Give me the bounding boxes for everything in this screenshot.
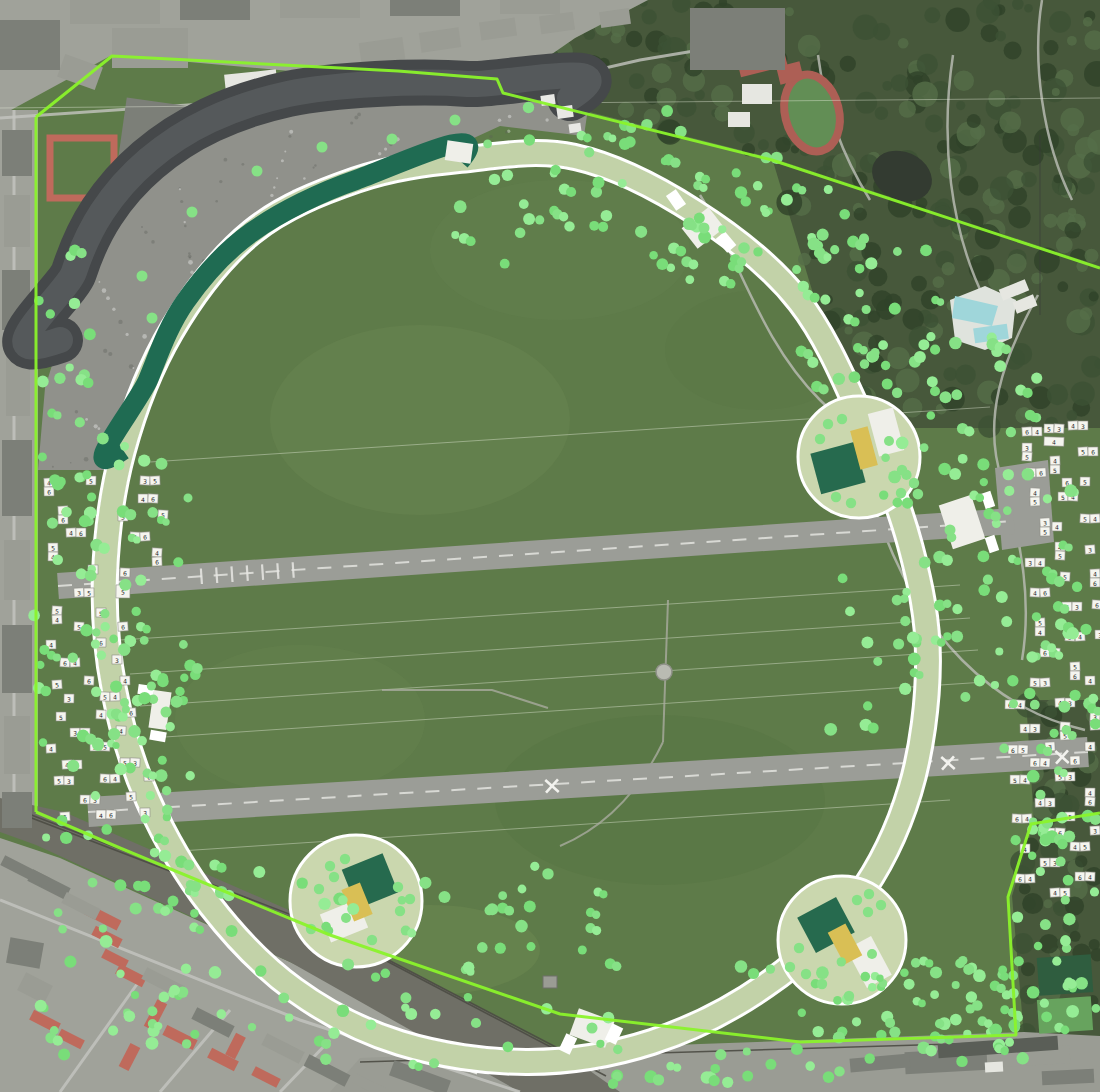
tree-dot: [852, 895, 862, 905]
tree-dot: [861, 636, 873, 648]
tree-dot: [337, 1004, 350, 1017]
tree-dot: [885, 1018, 895, 1028]
tree-dot: [321, 1039, 331, 1049]
tree-dot: [527, 942, 536, 951]
park-tree-blob: [1012, 933, 1033, 954]
tree-dot: [951, 631, 963, 643]
tree-dot: [781, 194, 793, 206]
park-tree-blob: [875, 107, 888, 120]
plot-storey-number: 5: [1047, 425, 1051, 432]
tree-dot: [183, 859, 194, 870]
plot-storey-number: 4: [1028, 875, 1032, 882]
tree-dot: [1005, 1038, 1014, 1047]
tree-dot: [991, 681, 999, 689]
park-tree-blob: [990, 177, 1014, 201]
tree-dot: [523, 102, 534, 113]
tree-dot: [101, 622, 110, 631]
tree-dot: [765, 1059, 776, 1070]
tree-dot: [1052, 957, 1061, 966]
plot-storey-number: 4: [123, 677, 127, 684]
tree-dot: [892, 388, 902, 398]
park-tree-blob: [1057, 281, 1068, 292]
tree-dot: [405, 894, 415, 904]
small-building: [543, 976, 557, 988]
tree-dot: [61, 507, 71, 517]
tree-dot: [138, 692, 150, 704]
apron-texture-dot: [142, 334, 147, 339]
plot-storey-number: 5: [129, 793, 133, 800]
tree-dot: [559, 212, 568, 221]
tree-dot: [973, 969, 986, 982]
plot-storey-number: 4: [113, 775, 117, 782]
tree-dot: [564, 221, 574, 231]
plot-storey-number: 3: [67, 778, 71, 785]
stadium-building: [728, 112, 750, 127]
apron-texture-dot: [284, 151, 286, 153]
apron-texture-dot: [144, 231, 147, 234]
park-tree-blob: [1044, 899, 1053, 908]
plot-storey-number: 3: [1081, 423, 1085, 430]
tree-dot: [592, 911, 600, 919]
tree-dot: [859, 234, 869, 244]
apron-texture-dot: [545, 118, 548, 121]
plot-storey-number: 4: [1088, 677, 1092, 684]
tree-dot: [502, 170, 513, 181]
tree-dot: [112, 742, 119, 749]
tree-dot: [966, 991, 977, 1002]
tree-dot: [897, 465, 907, 475]
tree-dot: [807, 357, 818, 368]
park-tree-blob: [1078, 177, 1095, 194]
tree-dot: [342, 958, 354, 970]
apron-texture-dot: [106, 296, 110, 300]
tree-dot: [53, 653, 61, 661]
park-tree-blob: [942, 262, 955, 275]
tree-dot: [41, 686, 52, 697]
plot-storey-number: 6: [63, 659, 67, 666]
tree-dot: [37, 376, 49, 388]
apron-texture-dot: [75, 410, 78, 413]
plot-storey-number: 5: [1083, 478, 1087, 485]
tree-dot: [1060, 936, 1071, 947]
tree-dot: [542, 868, 553, 879]
tree-dot: [735, 264, 744, 273]
tree-dot: [108, 728, 120, 740]
tree-dot: [156, 458, 168, 470]
park-tree-blob: [775, 137, 790, 152]
park-tree-blob: [1060, 108, 1084, 132]
tree-dot: [1024, 688, 1035, 699]
tree-dot: [824, 253, 832, 261]
tree-dot: [82, 470, 91, 479]
plot-storey-number: 4: [69, 529, 73, 536]
tree-dot: [649, 251, 658, 260]
tree-dot: [1088, 694, 1098, 704]
tree-dot: [140, 636, 149, 645]
tree-dot: [451, 231, 459, 239]
tree-dot: [722, 1077, 733, 1088]
apron-texture-dot: [99, 281, 101, 283]
tree-dot: [255, 965, 266, 976]
park-tree-blob: [995, 31, 1006, 42]
apron-texture-dot: [94, 424, 98, 428]
tree-dot: [182, 1039, 191, 1048]
plot-storey-number: 4: [1023, 725, 1027, 732]
tree-dot: [124, 1010, 136, 1022]
tree-dot: [181, 963, 191, 973]
plot-storey-number: 4: [1073, 843, 1077, 850]
plot-storey-number: 4: [1038, 559, 1042, 566]
tree-dot: [865, 1053, 875, 1063]
tree-dot: [1090, 887, 1099, 896]
tree-dot: [833, 373, 845, 385]
tree-dot: [142, 625, 151, 634]
tree-dot: [366, 1019, 377, 1030]
tree-dot: [838, 574, 848, 584]
park-tree-blob: [798, 35, 820, 57]
tree-dot: [1043, 494, 1052, 503]
tree-dot: [1057, 839, 1067, 849]
plot-storey-number: 5: [55, 607, 59, 614]
park-tree-blob: [925, 114, 943, 132]
park-tree-blob: [891, 74, 909, 92]
plot-storey-number: 5: [1013, 777, 1017, 784]
plot-storey-number: 3: [1093, 827, 1097, 834]
tree-dot: [612, 962, 622, 972]
park-tree-blob: [898, 38, 909, 49]
tree-dot: [949, 337, 962, 350]
tree-dot: [120, 698, 129, 707]
tree-dot: [119, 579, 131, 591]
tree-dot: [91, 791, 100, 800]
plot-storey-number: 4: [99, 711, 103, 718]
tree-dot: [169, 985, 180, 996]
tree-dot: [318, 898, 330, 910]
tree-dot: [54, 373, 65, 384]
tree-dot: [839, 209, 850, 220]
tree-dot: [52, 555, 63, 566]
tree-dot: [217, 1009, 227, 1019]
tree-dot: [893, 498, 903, 508]
building-block: [4, 716, 30, 774]
tree-dot: [429, 1058, 439, 1068]
tree-dot: [911, 958, 921, 968]
tree-dot: [524, 134, 535, 145]
tree-dot: [653, 1074, 664, 1085]
plot-storey-number: 5: [89, 477, 93, 484]
park-tree-blob: [912, 81, 938, 107]
tree-dot: [860, 359, 870, 369]
park-tree-blob: [1007, 254, 1027, 274]
tree-dot: [1014, 956, 1024, 966]
plot-storey-number: 5: [1043, 528, 1047, 535]
tree-dot: [464, 993, 472, 1001]
tree-dot: [1001, 616, 1012, 627]
tree-dot: [523, 213, 535, 225]
apron-texture-dot: [184, 221, 186, 223]
tree-dot: [791, 1043, 803, 1055]
tree-dot: [909, 478, 919, 488]
tree-dot: [139, 881, 151, 893]
tree-dot: [99, 543, 110, 554]
tree-dot: [173, 557, 183, 567]
apron-texture-dot: [190, 271, 193, 274]
ring-entrance-plaza: [445, 140, 474, 163]
tree-dot: [670, 157, 680, 167]
tree-dot: [400, 992, 411, 1003]
tree-dot: [735, 186, 747, 198]
plot-storey-number: 6: [151, 495, 155, 502]
apron-texture-dot: [70, 462, 72, 464]
tree-dot: [881, 361, 890, 370]
tree-dot: [498, 891, 507, 900]
tree-dot: [49, 474, 60, 485]
tree-dot: [609, 135, 617, 143]
park-tree-blob: [1004, 42, 1022, 60]
tree-dot: [439, 891, 451, 903]
tree-dot: [978, 584, 990, 596]
tree-dot: [1027, 770, 1040, 783]
tree-dot: [495, 943, 506, 954]
tree-dot: [846, 498, 856, 508]
tree-dot: [54, 908, 63, 917]
plot-storey-number: 6: [1033, 759, 1037, 766]
park-tree-blob: [967, 114, 981, 128]
apron-texture-dot: [215, 200, 218, 203]
tree-dot: [584, 147, 594, 157]
tree-dot: [91, 640, 100, 649]
plot-storey-number: 6: [1025, 428, 1029, 435]
park-tree-blob: [1065, 222, 1082, 239]
tree-dot: [823, 1071, 835, 1083]
tree-dot: [550, 165, 560, 175]
tree-dot: [893, 247, 902, 256]
apron-texture-dot: [151, 240, 155, 244]
tree-dot: [587, 1023, 598, 1034]
tree-dot: [1009, 699, 1018, 708]
plot-storey-number: 6: [143, 533, 147, 540]
tree-dot: [661, 105, 673, 117]
tree-dot: [42, 834, 50, 842]
apron-texture-dot: [288, 135, 291, 138]
tree-dot: [524, 901, 536, 913]
tree-dot: [699, 184, 707, 192]
building-block: [70, 0, 160, 24]
tree-dot: [1050, 729, 1059, 738]
park-tree-blob: [832, 153, 856, 177]
apron-texture-dot: [357, 113, 361, 117]
tree-dot: [1043, 747, 1052, 756]
plot-storey-number: 6: [1043, 589, 1047, 596]
park-tree-blob: [662, 37, 687, 62]
tree-dot: [815, 434, 825, 444]
park-tree-blob: [845, 326, 853, 334]
park-tree-blob: [854, 208, 867, 221]
tree-dot: [92, 628, 100, 636]
apron-texture-dot: [505, 130, 508, 133]
plot-storey-number: 6: [1011, 747, 1015, 754]
tree-dot: [471, 1018, 481, 1028]
tree-dot: [190, 909, 199, 918]
park-tree-blob: [954, 71, 974, 91]
plot-storey-number: 5: [1083, 843, 1087, 850]
tree-dot: [125, 509, 136, 520]
building-block: [390, 0, 460, 16]
plot-storey-number: 4: [1038, 799, 1042, 806]
tree-dot: [958, 454, 968, 464]
tree-dot: [996, 984, 1005, 993]
tree-dot: [676, 246, 687, 257]
park-tree-blob: [999, 111, 1021, 133]
tree-dot: [879, 490, 888, 499]
plot-storey-number: 3: [1075, 603, 1079, 610]
tree-dot: [138, 454, 150, 466]
plot-storey-number: 6: [103, 775, 107, 782]
tree-dot: [162, 786, 171, 795]
park-tree-blob: [785, 7, 794, 16]
tree-dot: [1022, 468, 1035, 481]
tree-dot: [1061, 895, 1070, 904]
tree-dot: [135, 575, 146, 586]
tree-dot: [515, 228, 526, 239]
plot-storey-number: 5: [1033, 498, 1037, 505]
tree-dot: [904, 979, 915, 990]
park-tree-blob: [868, 267, 887, 286]
tree-dot: [930, 345, 940, 355]
apron-texture-dot: [281, 159, 284, 162]
tree-dot: [831, 492, 841, 502]
tree-dot: [855, 289, 863, 297]
tree-dot: [1036, 867, 1045, 876]
tree-dot: [75, 417, 85, 427]
tree-dot: [817, 229, 829, 241]
plot-storey-number: 6: [87, 677, 91, 684]
tree-dot: [976, 493, 985, 502]
tree-dot: [209, 966, 222, 979]
tree-dot: [913, 489, 924, 500]
plot-storey-number: 4: [1053, 889, 1057, 896]
tree-dot: [132, 607, 141, 616]
plot-storey-number: 3: [115, 657, 119, 664]
plot-storey-number: 4: [113, 693, 117, 700]
tree-dot: [60, 832, 72, 844]
plot-storey-number: 5: [153, 477, 157, 484]
apron-texture-dot: [384, 148, 387, 151]
tree-dot: [154, 1022, 162, 1030]
park-tree-blob: [1085, 249, 1099, 263]
tree-dot: [694, 213, 705, 224]
tree-dot: [735, 960, 748, 973]
tree-dot: [39, 738, 47, 746]
tree-dot: [160, 906, 170, 916]
tree-dot: [699, 223, 710, 234]
tree-dot: [688, 221, 697, 230]
runway-threshold-bar: [231, 566, 232, 582]
plot-storey-number: 3: [1025, 444, 1029, 451]
tree-dot: [618, 179, 627, 188]
tree-dot: [951, 389, 962, 400]
tree-dot: [920, 443, 929, 452]
tree-dot: [1000, 972, 1009, 981]
plot-storey-number: 4: [1052, 438, 1056, 445]
tree-dot: [1066, 1005, 1079, 1018]
tree-dot: [150, 848, 160, 858]
plot-storey-number: 3: [1043, 519, 1047, 526]
building-block: [0, 20, 60, 70]
grass-patch: [270, 325, 570, 515]
tree-dot: [805, 1061, 815, 1071]
tree-dot: [454, 200, 467, 213]
tree-dot: [97, 432, 109, 444]
tree-dot: [1075, 977, 1088, 990]
tree-dot: [876, 900, 886, 910]
park-tree-blob: [981, 24, 999, 42]
tree-dot: [878, 340, 888, 350]
tree-dot: [128, 725, 141, 738]
apron-texture-dot: [303, 177, 306, 180]
tree-dot: [819, 384, 829, 394]
apron-texture-dot: [180, 200, 183, 203]
tree-dot: [407, 929, 416, 938]
plot-storey-number: 4: [1025, 815, 1029, 822]
tree-dot: [28, 610, 40, 622]
tree-dot: [963, 964, 974, 975]
tree-dot: [68, 652, 78, 662]
apron-texture-dot: [98, 427, 101, 430]
park-tree-blob: [1034, 128, 1059, 153]
tree-dot: [908, 653, 921, 666]
tree-dot: [889, 303, 901, 315]
tree-dot: [996, 591, 1008, 603]
plot-storey-number: 5: [1043, 859, 1047, 866]
tree-dot: [328, 1027, 340, 1039]
tree-dot: [91, 687, 101, 697]
tree-dot: [530, 862, 539, 871]
park-tree-blob: [1031, 273, 1043, 285]
tree-dot: [347, 903, 359, 915]
tree-dot: [47, 518, 58, 529]
plot-storey-number: 6: [155, 558, 159, 565]
tree-dot: [196, 925, 205, 934]
tree-dot: [715, 1049, 726, 1060]
tree-dot: [876, 975, 883, 982]
tree-dot: [515, 920, 528, 933]
park-tree-blob: [1024, 4, 1033, 13]
tree-dot: [837, 414, 847, 424]
tree-dot: [97, 651, 106, 660]
tree-dot: [1092, 1004, 1100, 1013]
plot-storey-number: 6: [1091, 448, 1095, 455]
plot-storey-number: 6: [1039, 469, 1043, 476]
apron-texture-dot: [102, 288, 107, 293]
tree-dot: [926, 1045, 937, 1056]
tree-dot: [147, 681, 156, 690]
tree-dot: [297, 877, 308, 888]
apron-texture-dot: [350, 121, 353, 124]
tree-dot: [1017, 1052, 1029, 1064]
tree-dot: [918, 339, 929, 350]
plot-storey-number: 5: [103, 693, 107, 700]
tree-dot: [414, 1063, 422, 1071]
tree-dot: [100, 935, 113, 948]
tree-dot: [884, 436, 894, 446]
tree-dot: [137, 271, 148, 282]
tree-dot: [367, 935, 377, 945]
tree-dot: [190, 1030, 199, 1039]
runway-threshold-bar: [216, 567, 217, 583]
tree-dot: [960, 692, 970, 702]
tree-dot: [69, 298, 80, 309]
